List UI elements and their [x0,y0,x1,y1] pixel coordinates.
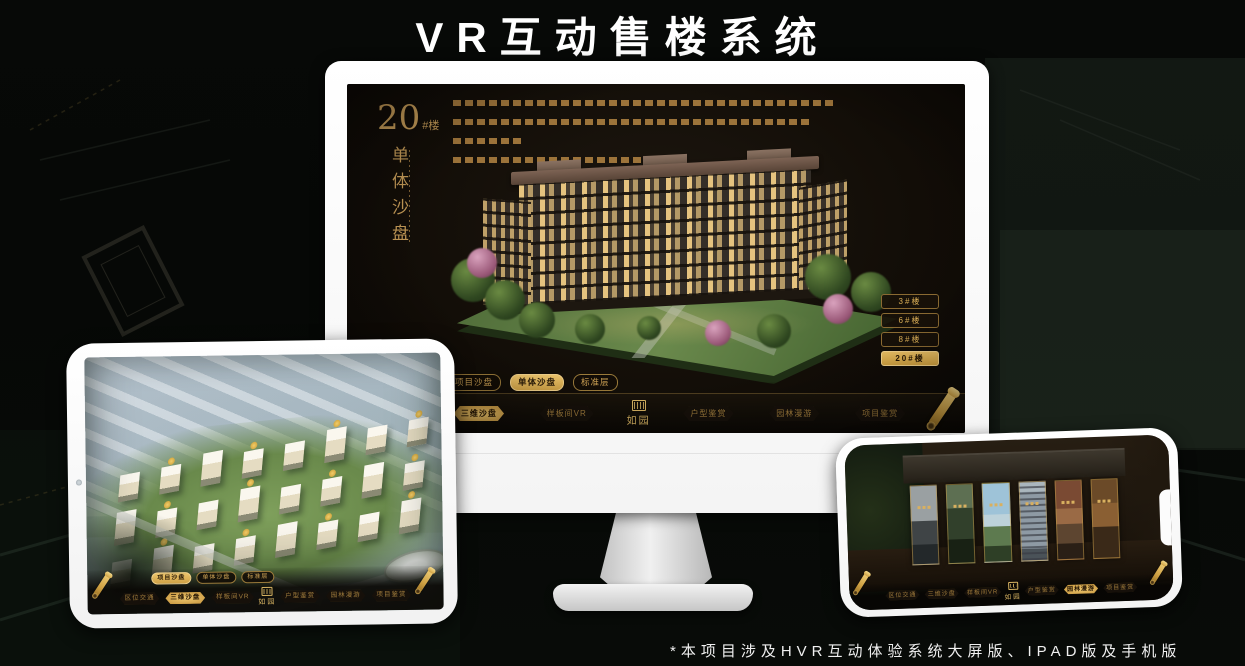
aerial-building [283,440,305,471]
nav-item-location-traffic[interactable]: 区位交通 [883,590,921,601]
building-number-suffix: #楼 [422,120,439,132]
nav-item-garden-roam[interactable]: 园林漫游 [766,406,822,422]
tablet-nav-items: 区位交通 三维沙盘 样板间VR 如园 户型鉴赏 园林漫游 项目鉴赏 [117,585,413,609]
tablet-camera-icon [76,480,82,486]
floor-button-3[interactable]: 3#楼 [881,294,939,309]
phone-nav-items: 区位交通 三维沙盘 样板间VR 如园 户型鉴赏 园林漫游 项目鉴赏 [883,577,1140,605]
aerial-building [358,512,380,543]
building-block-title: 20#楼 [377,98,439,138]
aerial-building [399,498,422,535]
brand-logo: 如园 [1004,582,1022,602]
scene-panel-courtyard[interactable] [910,484,940,565]
aerial-building [159,464,181,495]
aerial-building [324,426,347,463]
render-building [519,156,811,313]
aerial-building [279,484,301,515]
subtab-project-sandtable[interactable]: 项目沙盘 [447,374,501,391]
aerial-building [320,476,342,507]
brand-name: 如园 [258,597,276,607]
nav-item-garden-roam[interactable]: 园林漫游 [324,589,368,602]
description-text-line [453,119,813,125]
aerial-building [403,460,425,491]
aerial-building [365,425,387,456]
nav-item-floorplans[interactable]: 户型鉴赏 [680,406,736,422]
nav-item-project-gallery[interactable]: 项目鉴赏 [1101,582,1139,593]
nav-item-showroom-vr[interactable]: 样板间VR [962,587,1004,598]
aerial-building [316,519,338,550]
scene-panel-garden[interactable] [946,483,976,564]
brand-seal-icon [632,400,646,411]
scroll-menu-icon[interactable] [927,389,958,429]
brand-name: 如园 [1005,591,1022,602]
floor-button-6[interactable]: 6#楼 [881,313,939,328]
aerial-building [242,448,264,479]
monitor-stand-neck [600,505,712,589]
phone-notch [1159,489,1172,545]
tablet-screen: 项目沙盘 单体沙盘 标准层 区位交通 三维沙盘 样板间VR 如园 户型鉴赏 园林… [84,352,444,614]
subtab-standard-floor[interactable]: 标准层 [573,374,618,391]
nav-item-showroom-vr[interactable]: 样板间VR [537,406,597,422]
nav-item-project-gallery[interactable]: 项目鉴赏 [852,406,908,422]
phone-device: 区位交通 三维沙盘 样板间VR 如园 户型鉴赏 园林漫游 项目鉴赏 [835,427,1183,618]
aerial-building [275,521,298,558]
subtab-project-sandtable[interactable]: 项目沙盘 [151,572,191,585]
brand-name: 如园 [627,412,651,427]
scene-gallery [910,478,1121,565]
banner: VR互动售楼系统 [0,0,1245,56]
aerial-building [238,485,261,522]
floor-button-group: 3#楼 6#楼 8#楼 20#楼 [881,294,939,366]
nav-item-3d-sandtable[interactable]: 三维沙盘 [163,592,207,605]
aerial-building [118,472,140,503]
building-3d-render[interactable] [457,162,897,380]
building-subtitle-vertical: 单体沙盘 [386,146,411,250]
scroll-menu-icon[interactable] [415,568,434,593]
building-number: 20 [377,98,420,138]
building-facade-windows [519,169,811,305]
tree [519,302,555,338]
tree [805,254,851,300]
page-title: VR互动售楼系统 [415,4,829,65]
tree [637,316,661,340]
floor-button-20[interactable]: 20#楼 [881,351,939,366]
nav-item-3d-sandtable[interactable]: 三维沙盘 [923,588,961,599]
subtab-single-sandtable[interactable]: 单体沙盘 [196,571,236,584]
aerial-building [407,417,429,448]
tablet-subtabs: 项目沙盘 单体沙盘 标准层 [151,571,274,585]
title-divider [409,150,410,242]
brand-seal-icon [262,587,273,596]
brand-seal-icon [1008,582,1018,590]
scene-panel-building-elevation[interactable] [1018,481,1048,562]
phone-screen: 区位交通 三维沙盘 样板间VR 如园 户型鉴赏 园林漫游 项目鉴赏 [844,434,1174,610]
aerial-building [200,450,223,487]
subtab-single-sandtable[interactable]: 单体沙盘 [510,374,564,391]
tree [575,314,605,344]
monitor-subtabs: 项目沙盘 单体沙盘 标准层 [447,374,618,391]
description-text-line [453,138,525,144]
footnote-caption: *本项目涉及HVR互动体验系统大屏版、IPAD版及手机版 [670,640,1181,661]
scene-panel-community[interactable] [982,482,1012,563]
aerial-building [361,462,384,499]
scene-panel-autumn-landscape[interactable] [1054,479,1084,560]
scene-panel-interior[interactable] [1090,478,1120,559]
brand-logo: 如园 [258,587,276,607]
blossom-tree [705,320,731,346]
brand-logo: 如园 [627,400,651,427]
blossom-tree [467,248,497,278]
blossom-tree [823,294,853,324]
nav-item-location-traffic[interactable]: 区位交通 [118,592,162,605]
subtab-standard-floor[interactable]: 标准层 [241,571,274,583]
nav-item-project-gallery[interactable]: 项目鉴赏 [369,589,413,602]
promo-stage: VR互动售楼系统 20#楼 单体沙盘 [0,0,1245,666]
nav-item-showroom-vr[interactable]: 样板间VR [209,591,257,604]
tablet-bottom-navbar: 项目沙盘 单体沙盘 标准层 区位交通 三维沙盘 样板间VR 如园 户型鉴赏 园林… [87,565,444,614]
floor-button-8[interactable]: 8#楼 [881,332,939,347]
nav-item-3d-sandtable[interactable]: 三维沙盘 [451,406,507,422]
tree [757,314,791,348]
description-text-line [453,100,837,106]
nav-item-floorplans[interactable]: 户型鉴赏 [278,590,322,603]
monitor-stand-base [553,584,753,611]
scroll-menu-icon[interactable] [92,573,111,598]
tablet-device: 项目沙盘 单体沙盘 标准层 区位交通 三维沙盘 样板间VR 如园 户型鉴赏 园林… [66,338,458,628]
nav-item-floorplans[interactable]: 户型鉴赏 [1023,585,1061,596]
nav-item-garden-roam[interactable]: 园林漫游 [1062,583,1100,594]
